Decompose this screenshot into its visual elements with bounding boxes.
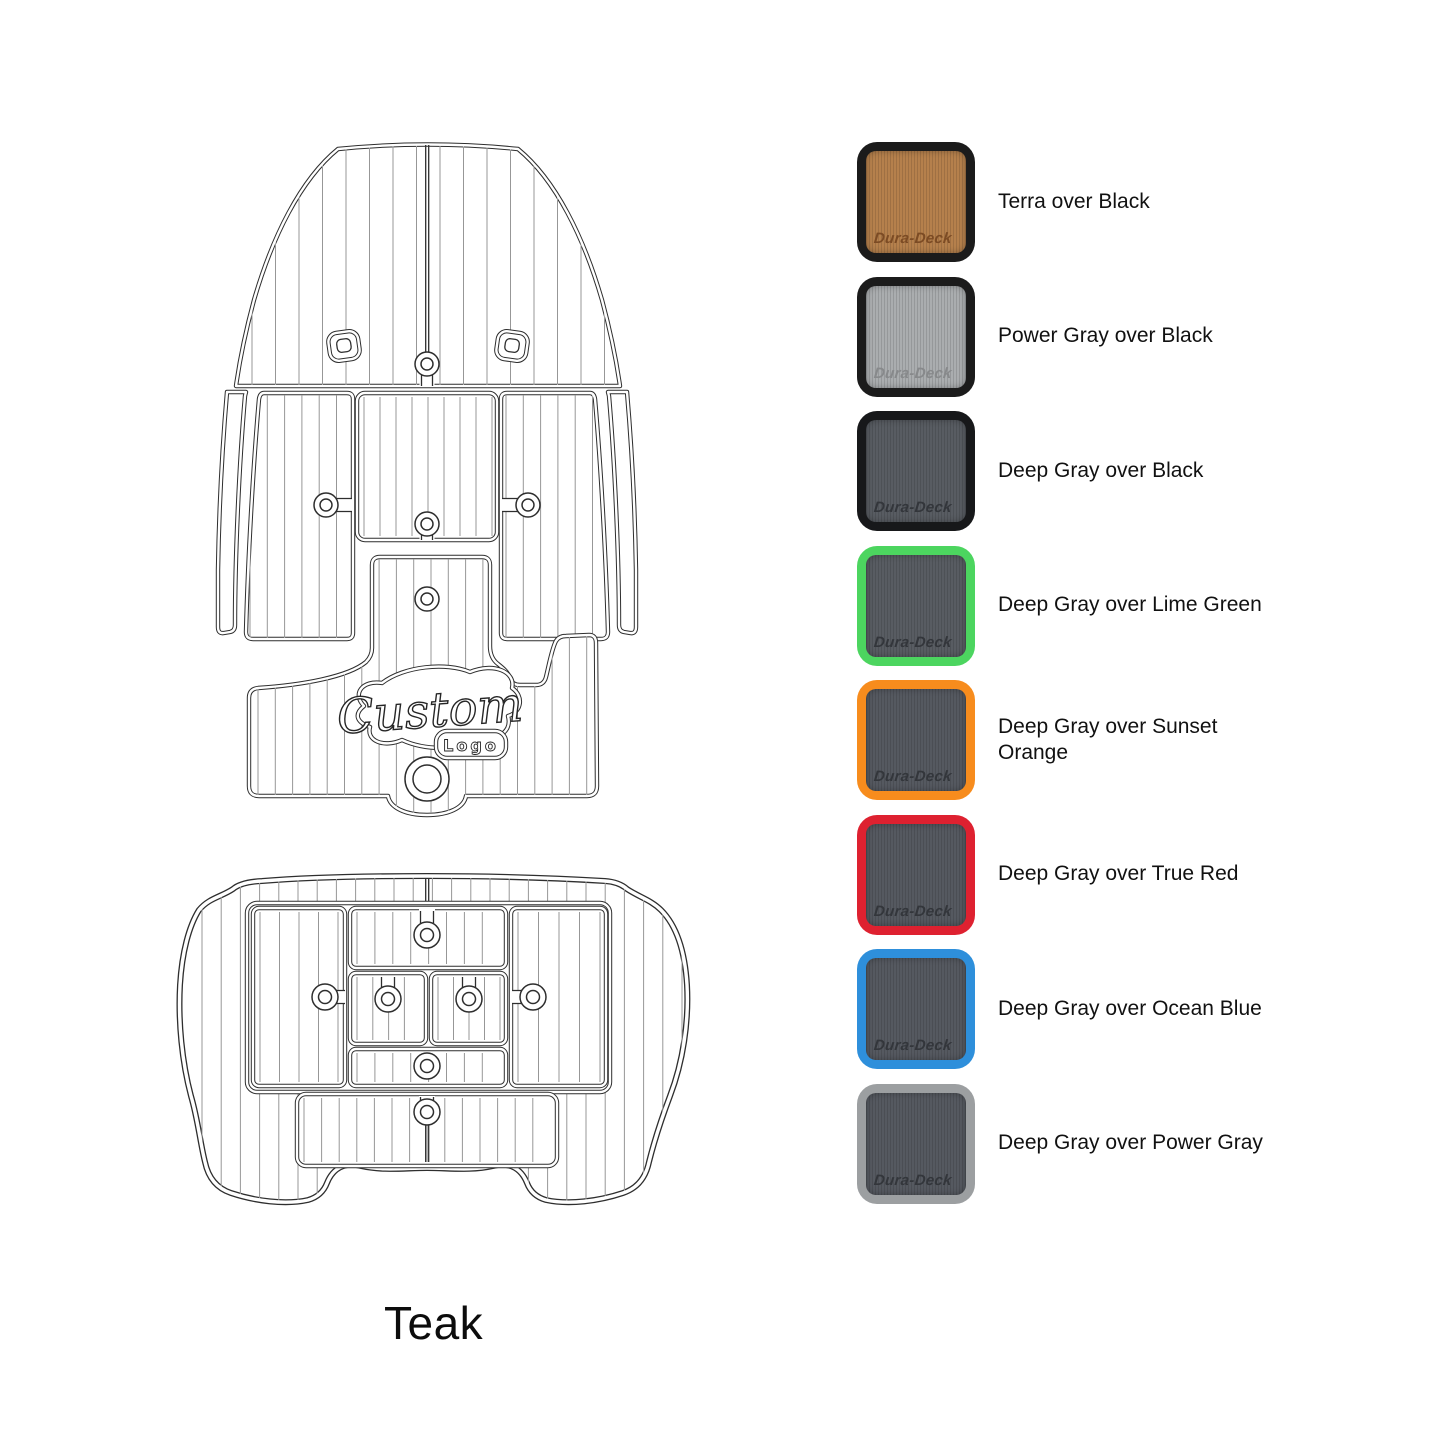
cleat-cutout-left [327,330,361,362]
swatch-chip: Dura-Deck [857,546,975,666]
swatch-chip: Dura-Deck [857,949,975,1069]
swatch-label: Deep Gray over Black [998,458,1203,484]
swatch-row-deep-gray-over-power-gray: Dura-Deck Deep Gray over Power Gray [857,1084,1270,1204]
swatch-pad: Dura-Deck [866,286,966,388]
bow-center-panel [357,393,497,541]
swatch-row-terra-over-black: Dura-Deck Terra over Black [857,142,1270,262]
swatch-row-deep-gray-over-sunset-orange: Dura-Deck Deep Gray over Sunset Orange [857,680,1270,800]
bow-top-section [236,143,620,387]
bow-mid-right-panel [501,393,608,639]
swatch-chip: Dura-Deck [857,1084,975,1204]
swatch-label: Deep Gray over Ocean Blue [998,996,1262,1022]
custom-logo-sub: Logo [443,736,499,755]
swatch-pad: Dura-Deck [866,420,966,522]
swatch-row-deep-gray-over-true-red: Dura-Deck Deep Gray over True Red [857,815,1270,935]
swatch-pad: Dura-Deck [866,151,966,253]
swatch-label: Terra over Black [998,189,1150,215]
swatch-chip: Dura-Deck [857,815,975,935]
dura-deck-brand-text: Dura-Deck [873,499,953,516]
swatch-row-power-gray-over-black: Dura-Deck Power Gray over Black [857,277,1270,397]
color-swatch-list: Dura-Deck Terra over Black Dura-Deck Pow… [857,142,1270,1204]
swatch-chip: Dura-Deck [857,277,975,397]
swatch-row-deep-gray-over-ocean-blue: Dura-Deck Deep Gray over Ocean Blue [857,949,1270,1069]
swatch-chip: Dura-Deck [857,680,975,800]
dura-deck-brand-text: Dura-Deck [873,1172,953,1189]
swatch-label: Deep Gray over Lime Green [998,592,1262,618]
swatch-row-deep-gray-over-lime-green: Dura-Deck Deep Gray over Lime Green [857,546,1270,666]
swatch-row-deep-gray-over-black: Dura-Deck Deep Gray over Black [857,411,1270,531]
swatch-chip: Dura-Deck [857,142,975,262]
swatch-pad: Dura-Deck [866,824,966,926]
swatch-pad: Dura-Deck [866,555,966,657]
product-image-canvas: Custom Logo [0,0,1445,1445]
dura-deck-brand-text: Dura-Deck [873,365,953,382]
bow-pad-drawing: Custom Logo [213,130,645,830]
cockpit-pad-drawing [160,863,695,1220]
swatch-label: Deep Gray over Sunset Orange [998,714,1270,767]
dura-deck-brand-text: Dura-Deck [873,1037,953,1054]
dura-deck-brand-text: Dura-Deck [873,768,953,785]
material-label: Teak [384,1296,483,1350]
swatch-pad: Dura-Deck [866,689,966,791]
swatch-label: Deep Gray over True Red [998,861,1238,887]
dura-deck-brand-text: Dura-Deck [873,903,953,920]
dura-deck-brand-text: Dura-Deck [873,230,953,247]
dura-deck-brand-text: Dura-Deck [873,634,953,651]
swatch-pad: Dura-Deck [866,958,966,1060]
bow-mid-left-panel [246,393,353,639]
cleat-cutout-right [495,330,529,362]
swatch-label: Power Gray over Black [998,323,1213,349]
swatch-chip: Dura-Deck [857,411,975,531]
swatch-label: Deep Gray over Power Gray [998,1130,1263,1156]
swatch-pad: Dura-Deck [866,1093,966,1195]
